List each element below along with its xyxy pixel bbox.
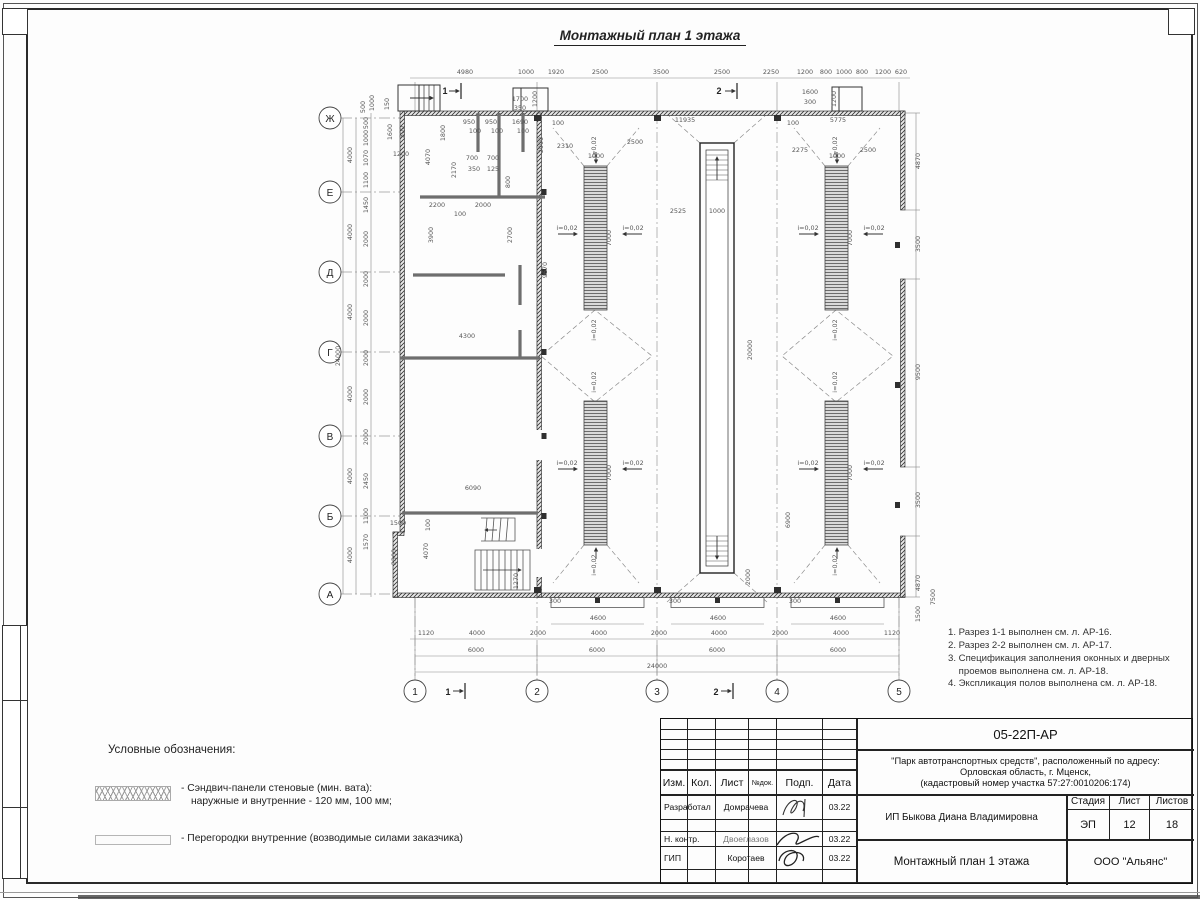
- dim-label: 4000: [346, 304, 354, 320]
- dim-label: 1270: [512, 573, 520, 589]
- tb-sheet-value: 12: [1110, 810, 1149, 839]
- note-item: 3. Спецификация заполнения оконных и две…: [948, 653, 1196, 679]
- door-gap-2: [536, 549, 543, 577]
- dim-label: 1070: [362, 150, 370, 166]
- dim-label: 2525: [670, 207, 686, 215]
- dim-label: 2310: [557, 142, 573, 150]
- dim-label: 350: [468, 165, 480, 173]
- dim-label: i=0,02: [590, 319, 598, 340]
- dim-label: 2000: [362, 389, 370, 405]
- dim-label: 2500: [627, 138, 643, 146]
- dim-label: 300: [398, 126, 406, 138]
- dim-label: 2500: [860, 146, 876, 154]
- dim-label: i=0,02: [831, 371, 839, 392]
- dim-label: 7000: [846, 465, 854, 481]
- dim-label: 300: [669, 597, 681, 605]
- tb-stage-label: Стадия: [1067, 794, 1109, 809]
- tb-name-ncontr: Двоеглазов: [716, 832, 776, 846]
- dim-label: 4300: [459, 332, 475, 340]
- scan-artifact-line: [0, 892, 1200, 893]
- axis-row-g: Г: [327, 348, 333, 359]
- notes-list: 1. Разрез 1-1 выполнен см. л. АР-16. 2. …: [948, 627, 1196, 691]
- tb-col-data: Дата: [823, 771, 856, 794]
- tb-date-ncontr: 03.22: [823, 832, 856, 846]
- dim-label: 4000: [833, 629, 849, 637]
- dim-label: 24000: [647, 662, 667, 670]
- signature-gip: [773, 827, 825, 871]
- dim-label: 100: [552, 119, 564, 127]
- dim-label: 6000: [589, 646, 605, 654]
- dim-label: 1200: [830, 91, 838, 107]
- dim-label: 4600: [830, 614, 846, 622]
- dim-label: 1120: [418, 629, 434, 637]
- dim-label: 1000: [709, 207, 725, 215]
- tb-col-izm: Изм.: [661, 771, 687, 794]
- axis-col-1: 1: [412, 687, 418, 698]
- dim-label: 2500: [714, 68, 730, 76]
- dim-label: 3500: [653, 68, 669, 76]
- note-item: 2. Разрез 2-2 выполнен см. л. АР-17.: [948, 640, 1196, 653]
- axis-row-zh: Ж: [325, 114, 335, 125]
- floor-plan: 1 2 1 2 Ж Е Д Г В Б А 1 2 3 4 5 49801000…: [315, 52, 975, 712]
- dim-label: 1200: [797, 68, 813, 76]
- scan-artifact-strip: [78, 895, 1200, 899]
- dim-label: 1000: [836, 68, 852, 76]
- dim-label: 2000: [362, 429, 370, 445]
- dim-label: 7000: [605, 230, 613, 246]
- tb-role-developer: Разработал: [662, 796, 717, 818]
- dim-label: 9670: [541, 262, 549, 278]
- dim-label: 2000: [744, 569, 752, 585]
- axis-bubble-labels: Ж Е Д Г В Б А 1 2 3 4 5: [325, 114, 902, 698]
- dim-label: 7500: [929, 589, 937, 605]
- tb-sheets-value: 18: [1150, 810, 1194, 839]
- margin-stamp-box-3: [2, 807, 28, 879]
- dim-label: 4000: [346, 468, 354, 484]
- dim-label: i=0,02: [831, 554, 839, 575]
- axis-row-b: Б: [327, 512, 334, 523]
- dim-label: 950: [463, 118, 475, 126]
- dim-label: 3900: [427, 227, 435, 243]
- note-item: 4. Экспликация полов выполнена см. л. АР…: [948, 678, 1196, 691]
- note-item: 1. Разрез 1-1 выполнен см. л. АР-16.: [948, 627, 1196, 640]
- signature-developer: [777, 795, 822, 821]
- legend-item-2: - Перегородки внутренние (возводимые сил…: [181, 833, 561, 846]
- dim-label: 7000: [846, 230, 854, 246]
- legend-title: Условные обозначения:: [108, 744, 235, 756]
- dim-label: i=0,02: [622, 459, 643, 467]
- dim-label: i=0,02: [556, 224, 577, 232]
- dim-label: 7000: [605, 465, 613, 481]
- dim-label: 20000: [746, 340, 754, 360]
- tb-company: ООО "Альянс": [1067, 841, 1194, 883]
- margin-stamp-box-2: [2, 700, 28, 809]
- dim-label: i=0,02: [831, 319, 839, 340]
- tb-date-developer: 03.22: [823, 796, 856, 818]
- tb-col-kol: Кол.: [688, 771, 715, 794]
- dim-label: 4870: [914, 575, 922, 591]
- entrance-porches: [398, 85, 862, 111]
- tb-col-ndok: №док.: [749, 771, 776, 794]
- tb-col-list: Лист: [716, 771, 748, 794]
- dim-label: 2000: [362, 350, 370, 366]
- tb-role-ncontr: Н. контр.: [662, 832, 717, 846]
- dim-label: 1920: [548, 68, 564, 76]
- dim-label: i=0,02: [831, 136, 839, 157]
- dim-label: 700: [487, 154, 499, 162]
- dim-label: 300: [789, 597, 801, 605]
- tb-date-gip: 03.22: [823, 847, 856, 868]
- section-2-label-top: 2: [716, 86, 721, 96]
- tb-col-podp: Подп.: [777, 771, 822, 794]
- dim-label: 100: [517, 127, 529, 135]
- tb-project: "Парк автотранспортных средств", располо…: [861, 751, 1190, 794]
- dim-label: 100: [787, 119, 799, 127]
- tb-client: ИП Быкова Диана Владимировна: [857, 796, 1066, 839]
- dim-label: 1100: [362, 172, 370, 188]
- dim-label: 2000: [772, 629, 788, 637]
- tb-sheets-label: Листов: [1150, 794, 1194, 809]
- dim-label: 620: [895, 68, 907, 76]
- tb-stage-value: ЭП: [1067, 810, 1109, 839]
- dim-label: 3500: [914, 236, 922, 252]
- dim-label: 4000: [346, 147, 354, 163]
- dim-label: 2000: [651, 629, 667, 637]
- frame-top: [26, 8, 1193, 10]
- plain-swatch: [95, 835, 171, 845]
- dim-label: 125: [487, 165, 499, 173]
- dim-label: 4000: [469, 629, 485, 637]
- crosshatch-swatch: [95, 786, 171, 801]
- dim-label: 950: [485, 118, 497, 126]
- dim-label: 100: [454, 210, 466, 218]
- dim-label: 1570: [362, 534, 370, 550]
- dim-label: 1200: [531, 91, 539, 107]
- dim-label: 100: [424, 519, 432, 531]
- section-1-label-bottom: 1: [445, 687, 450, 697]
- dim-label: 500: [359, 101, 367, 113]
- dim-label: 1690: [512, 118, 528, 126]
- dim-label: 500: [362, 117, 370, 129]
- dim-label: 4070: [422, 543, 430, 559]
- dim-label: 6900: [784, 512, 792, 528]
- frame-corner-box-top-right: [1168, 8, 1195, 35]
- dim-label: 6000: [830, 646, 846, 654]
- dim-label: 2250: [763, 68, 779, 76]
- dim-label: 9500: [914, 364, 922, 380]
- tb-doc-code: 05-22П-АР: [857, 719, 1194, 749]
- dim-label: 1000: [368, 95, 376, 111]
- dim-label: 1700: [512, 95, 528, 103]
- dim-label: 6000: [468, 646, 484, 654]
- dim-label: 4870: [914, 153, 922, 169]
- dim-label: 1200: [393, 150, 409, 158]
- axis-row-v: В: [327, 432, 334, 443]
- axis-col-5: 5: [896, 687, 902, 698]
- drawing-sheet: Монтажный план 1 этажа: [0, 0, 1200, 900]
- dim-label: i=0,02: [590, 136, 598, 157]
- dim-label: 6000: [709, 646, 725, 654]
- dim-label: 4000: [591, 629, 607, 637]
- dim-label: 4600: [590, 614, 606, 622]
- dim-label: 1000: [518, 68, 534, 76]
- dim-label: 3500: [914, 492, 922, 508]
- dim-label: i=0,02: [556, 459, 577, 467]
- frame-corner-box-top-left: [2, 8, 28, 35]
- dim-label: 300: [804, 98, 816, 106]
- dim-label: 350: [514, 104, 526, 112]
- dim-label: i=0,02: [863, 459, 884, 467]
- axis-row-d: Д: [327, 268, 334, 279]
- dim-label: i=0,02: [797, 459, 818, 467]
- dim-label: 1600: [802, 88, 818, 96]
- title-block: Изм. Кол. Лист №док. Подп. Дата Разработ…: [660, 718, 1193, 884]
- dim-label: 2000: [362, 231, 370, 247]
- stairwell: [475, 518, 530, 590]
- dim-label: 2500: [592, 68, 608, 76]
- dim-label: 4000: [346, 224, 354, 240]
- dim-label: 2000: [530, 629, 546, 637]
- dim-label: 2275: [792, 146, 808, 154]
- dim-label: 800: [820, 68, 832, 76]
- dim-label: 4000: [346, 386, 354, 402]
- dim-label: i=0,02: [863, 224, 884, 232]
- dim-label: 11935: [675, 116, 695, 124]
- axis-col-2: 2: [534, 687, 540, 698]
- dim-label: 2000: [475, 201, 491, 209]
- dim-label: 6090: [465, 484, 481, 492]
- dim-label: 2000: [362, 271, 370, 287]
- axis-row-a: А: [327, 590, 334, 601]
- tb-sheet-title: Монтажный план 1 этажа: [857, 841, 1066, 883]
- dim-label: 2450: [362, 473, 370, 489]
- dim-label: 1100: [362, 508, 370, 524]
- tb-name-gip: Коротаев: [716, 847, 776, 868]
- dim-label: 2000: [362, 310, 370, 326]
- dim-label: 1450: [362, 197, 370, 213]
- dim-label: 150: [383, 98, 391, 110]
- dim-label: 4000: [711, 629, 727, 637]
- dim-label: 1500: [914, 606, 922, 622]
- section-2-label-bottom: 2: [713, 687, 718, 697]
- dim-label: 1600: [386, 124, 394, 140]
- dim-label: 2200: [429, 201, 445, 209]
- dim-label: 4980: [457, 68, 473, 76]
- axis-col-4: 4: [774, 687, 780, 698]
- section-1-label-top: 1: [442, 86, 447, 96]
- dim-label: 100: [491, 127, 503, 135]
- dim-label: 2170: [450, 162, 458, 178]
- dim-label: 700: [466, 154, 478, 162]
- dim-label: 2000: [537, 137, 545, 153]
- tb-role-gip: ГИП: [662, 847, 717, 868]
- margin-stamp-box-1: [2, 625, 28, 702]
- interior-partitions: [400, 113, 545, 513]
- legend-item-1: - Сэндвич-панели стеновые (мин. вата): н…: [181, 783, 511, 809]
- dim-label: 800: [504, 176, 512, 188]
- dim-label: 1000: [362, 130, 370, 146]
- dim-label: 4070: [424, 149, 432, 165]
- dim-label: 2300: [390, 549, 398, 565]
- dim-label: 1120: [884, 629, 900, 637]
- tb-name-developer: Домрачева: [716, 796, 776, 818]
- dim-label: 1500: [390, 519, 406, 527]
- dim-label: 1800: [439, 125, 447, 141]
- dim-label: 800: [856, 68, 868, 76]
- dim-label: i=0,02: [590, 371, 598, 392]
- tb-sheet-label: Лист: [1110, 794, 1149, 809]
- dim-label: i=0,02: [797, 224, 818, 232]
- axis-col-3: 3: [654, 687, 660, 698]
- dim-label: 1200: [875, 68, 891, 76]
- page-title: Монтажный план 1 этажа: [395, 28, 905, 43]
- axis-bubbles: [319, 107, 910, 702]
- dim-label: 5775: [830, 116, 846, 124]
- dim-label: 100: [469, 127, 481, 135]
- dim-label: 4600: [710, 614, 726, 622]
- axis-row-e: Е: [327, 188, 334, 199]
- dim-label: 4000: [346, 547, 354, 563]
- dim-label: i=0,02: [622, 224, 643, 232]
- dim-label: i=0,02: [590, 554, 598, 575]
- dim-label: 24000: [334, 346, 342, 366]
- dim-label: 300: [549, 597, 561, 605]
- dim-label: 2700: [506, 227, 514, 243]
